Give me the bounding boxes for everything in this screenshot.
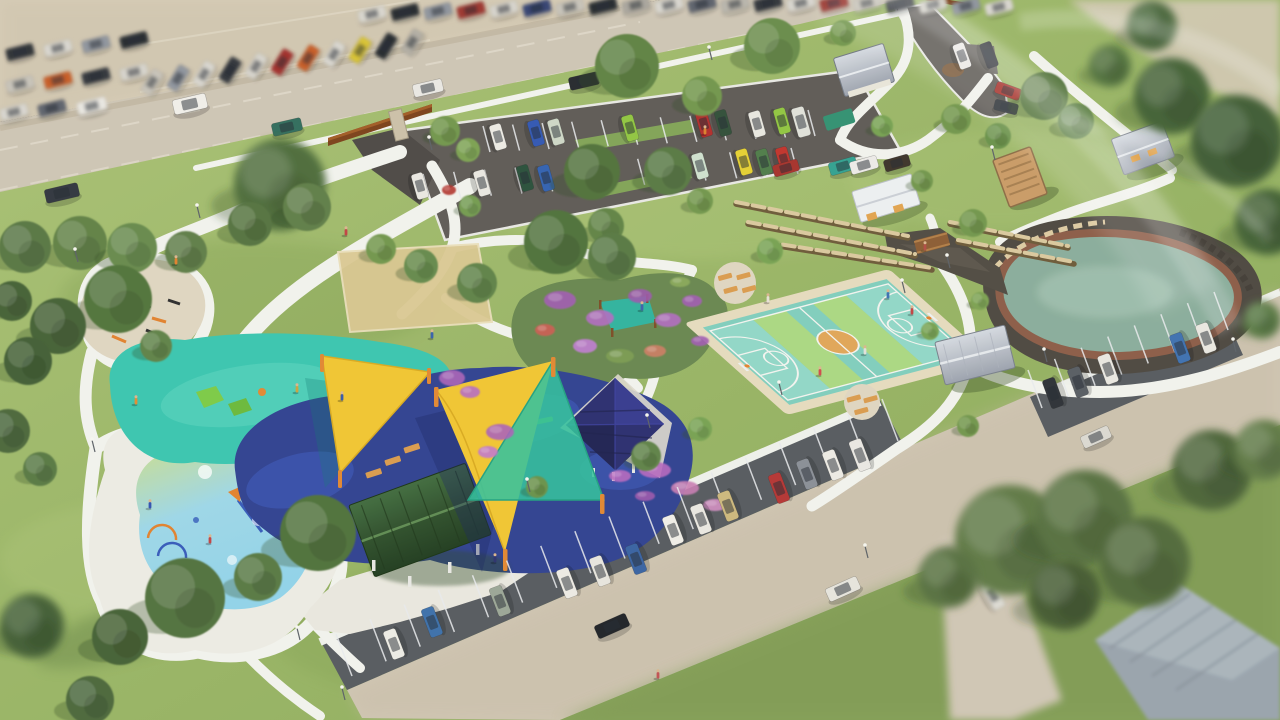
flower-patch [544,291,576,309]
flower-patch [671,481,699,495]
flower-patch [460,386,480,398]
flower-patch [586,310,614,326]
flower-patch [573,339,597,353]
park-rendering: Aerial 3D rendering of a community park … [0,0,1280,720]
tree [0,594,64,658]
flower-patch [682,295,702,307]
flower-patch [628,289,652,303]
flower-patch [655,313,681,327]
flower-patch [439,370,465,386]
flower-patch [535,324,555,336]
flower-patch [670,277,690,287]
flower-patch [478,446,498,458]
flower-patch [644,345,666,357]
flower-patch [442,185,456,195]
flower-patch [606,349,634,363]
flower-patch [486,424,514,440]
flower-patch [635,491,655,501]
flower-patch [691,336,709,346]
flower-patch [609,470,631,482]
park-rendering-canvas [0,0,1280,720]
tree [0,221,51,273]
